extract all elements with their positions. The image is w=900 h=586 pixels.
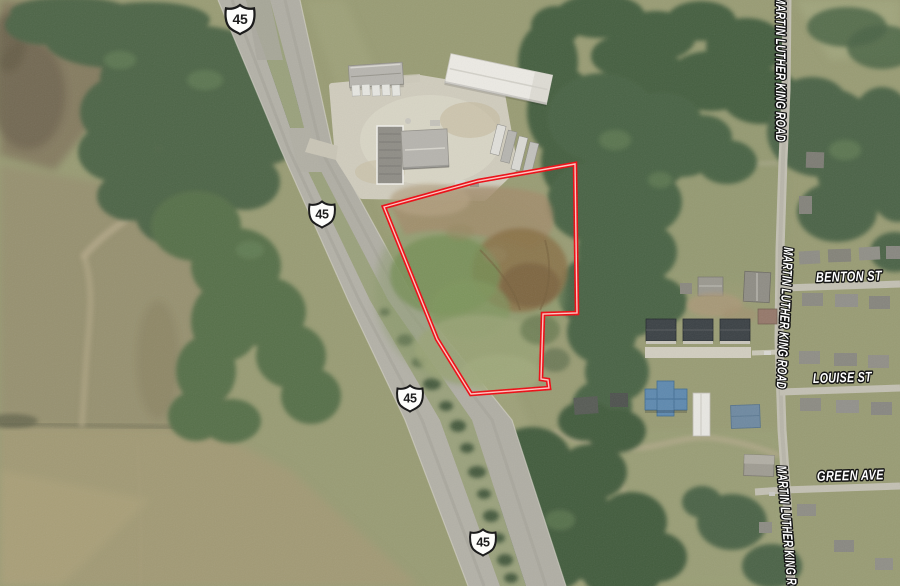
aerial-parcel-map[interactable]: 45 45 45 45 MARTIN LUTHER KING ROAD MART…: [0, 0, 900, 586]
street-label-benton: BENTON ST: [816, 267, 883, 285]
grain-overlay: [0, 0, 900, 586]
street-label-green: GREEN AVE: [817, 466, 885, 484]
route-number: 45: [403, 392, 417, 406]
route-number: 45: [233, 11, 248, 27]
route-number: 45: [476, 536, 490, 550]
street-label-louise: LOUISE ST: [813, 368, 873, 386]
route-number: 45: [315, 208, 329, 222]
street-label-mlk-top: MARTIN LUTHER KING ROAD: [773, 0, 788, 142]
